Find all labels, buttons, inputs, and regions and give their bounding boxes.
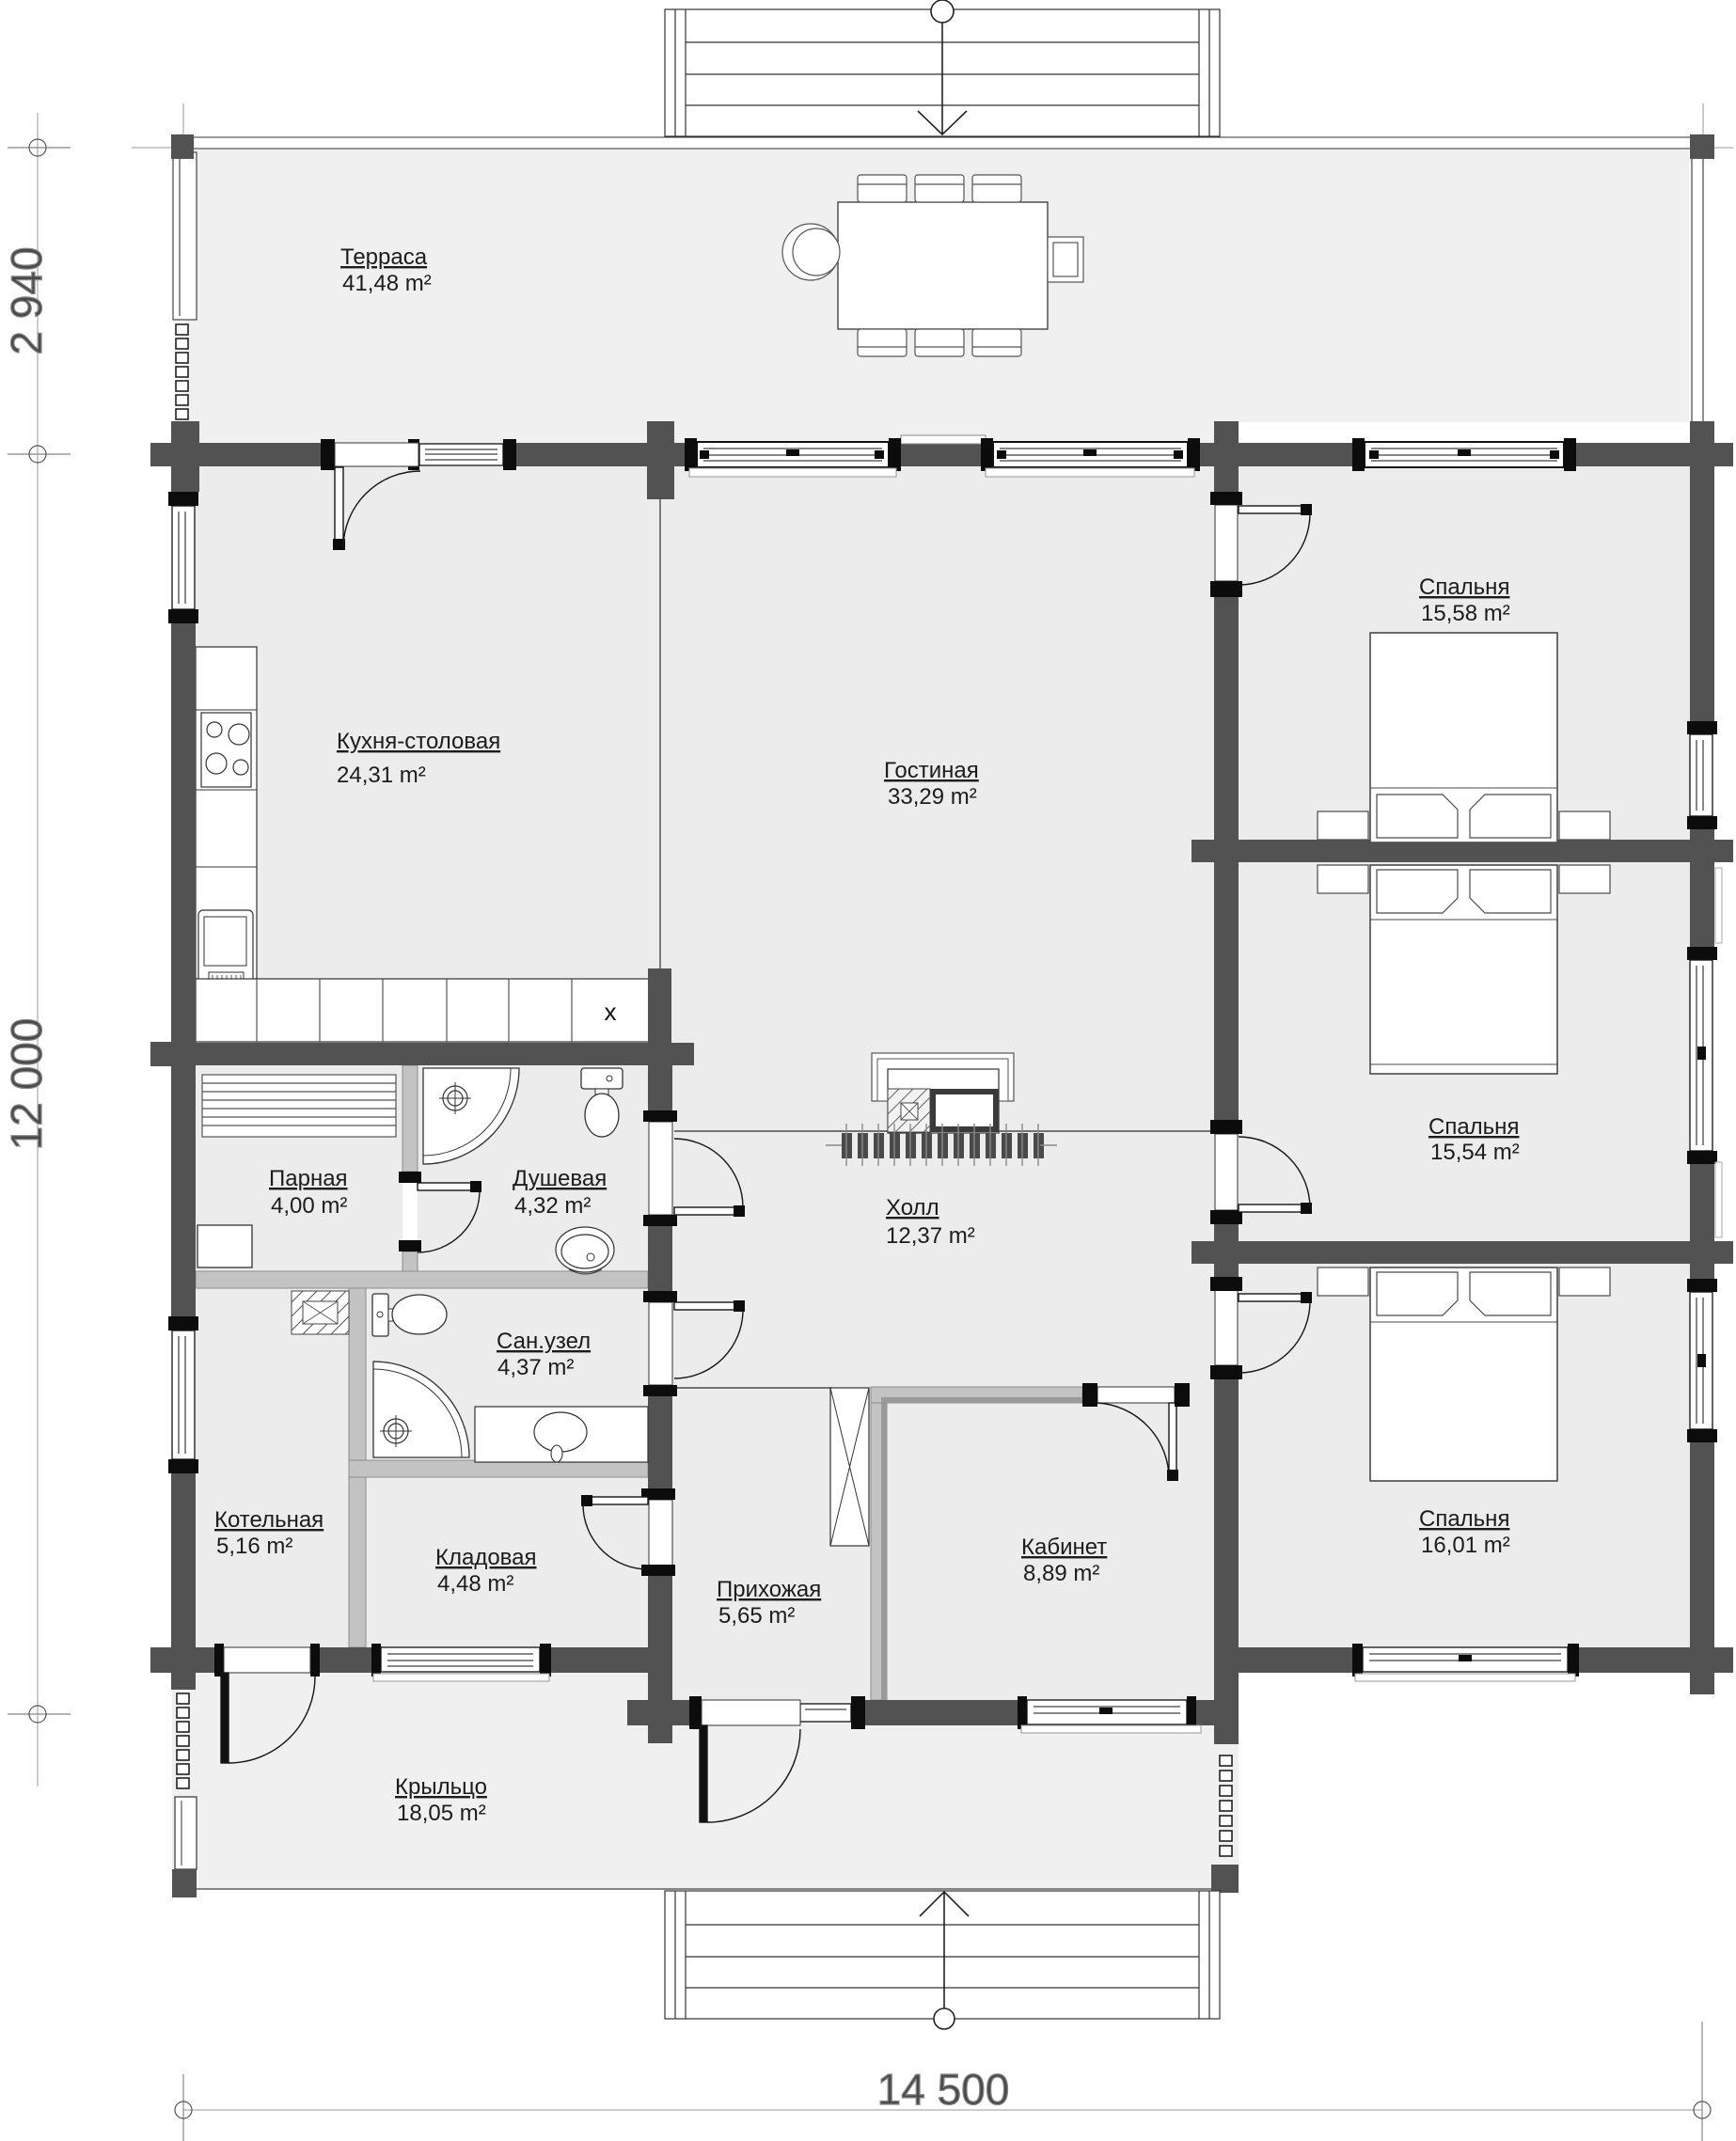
svg-text:Сан.узел: Сан.узел: [497, 1329, 591, 1354]
svg-text:Парная: Парная: [269, 1166, 348, 1191]
svg-text:4,37 m²: 4,37 m²: [497, 1355, 574, 1380]
svg-text:x: x: [605, 998, 617, 1026]
svg-text:15,58 m²: 15,58 m²: [1421, 601, 1510, 626]
svg-text:33,29 m²: 33,29 m²: [888, 784, 977, 810]
svg-text:Крыльцо: Крыльцо: [395, 1774, 487, 1800]
svg-text:Прихожая: Прихожая: [717, 1577, 821, 1602]
svg-text:Кабинет: Кабинет: [1021, 1535, 1107, 1560]
svg-text:5,16 m²: 5,16 m²: [216, 1534, 292, 1559]
svg-text:Кухня-столовая: Кухня-столовая: [337, 729, 500, 754]
svg-text:2 940: 2 940: [2, 246, 51, 354]
svg-text:4,32 m²: 4,32 m²: [514, 1193, 591, 1219]
svg-text:16,01 m²: 16,01 m²: [1421, 1533, 1510, 1558]
svg-text:12,37 m²: 12,37 m²: [886, 1223, 975, 1249]
svg-text:8,89 m²: 8,89 m²: [1023, 1561, 1099, 1586]
svg-text:24,31 m²: 24,31 m²: [337, 763, 426, 788]
svg-text:15,54 m²: 15,54 m²: [1430, 1140, 1520, 1165]
svg-text:5,65 m²: 5,65 m²: [718, 1603, 795, 1629]
svg-text:Холл: Холл: [886, 1195, 939, 1220]
svg-text:Котельная: Котельная: [214, 1507, 324, 1533]
svg-text:41,48 m²: 41,48 m²: [342, 271, 432, 296]
svg-text:4,00 m²: 4,00 m²: [271, 1193, 347, 1219]
svg-text:14 500: 14 500: [877, 2065, 1010, 2114]
svg-text:18,05 m²: 18,05 m²: [397, 1801, 486, 1826]
svg-text:Душевая: Душевая: [513, 1166, 607, 1191]
svg-text:12 000: 12 000: [2, 1018, 51, 1151]
svg-text:Спальня: Спальня: [1428, 1114, 1519, 1140]
svg-text:Терраса: Терраса: [340, 244, 428, 270]
svg-text:4,48 m²: 4,48 m²: [437, 1571, 513, 1597]
svg-text:Спальня: Спальня: [1419, 575, 1509, 600]
svg-text:Гостиная: Гостиная: [884, 758, 979, 783]
svg-text:Кладовая: Кладовая: [435, 1545, 537, 1570]
svg-text:Спальня: Спальня: [1419, 1506, 1509, 1532]
